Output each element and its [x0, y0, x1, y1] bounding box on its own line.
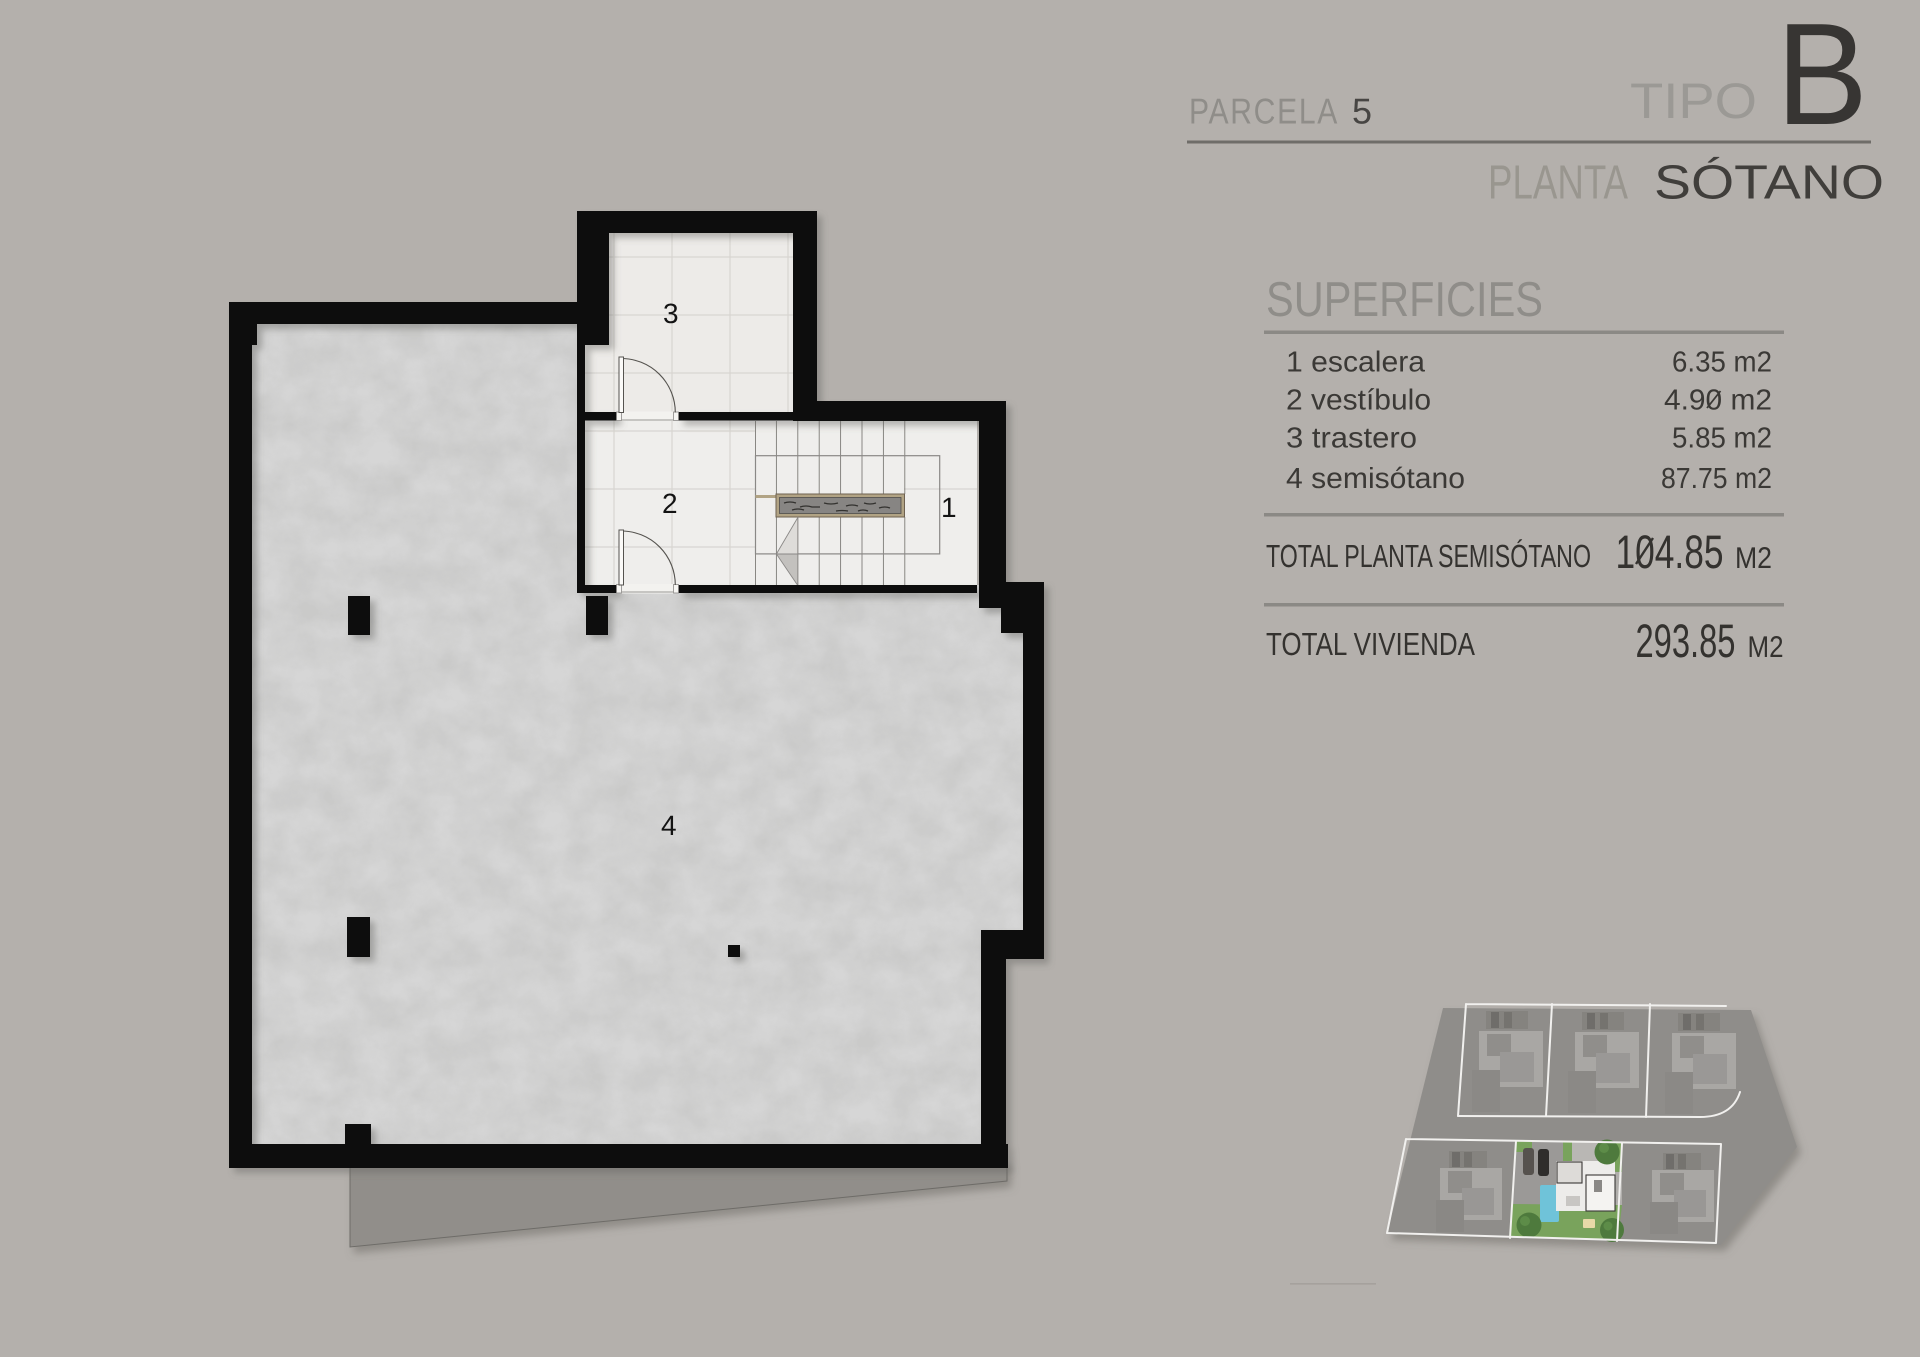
svg-text:4 semisótano: 4 semisótano [1286, 463, 1465, 495]
svg-text:4: 4 [661, 810, 677, 841]
svg-text:PLANTA: PLANTA [1488, 157, 1628, 210]
svg-text:3 trastero: 3 trastero [1286, 423, 1417, 455]
svg-text:B: B [1776, 0, 1868, 155]
svg-text:TOTAL VIVIENDA: TOTAL VIVIENDA [1266, 626, 1476, 662]
svg-text:2: 2 [662, 488, 678, 519]
svg-text:5: 5 [1352, 91, 1372, 132]
svg-text:5.85 m2: 5.85 m2 [1672, 423, 1772, 455]
svg-text:104.85: 104.85 [1616, 525, 1724, 578]
svg-text:PARCELA: PARCELA [1189, 91, 1339, 132]
svg-text:TOTAL PLANTA SEMISÓTANO: TOTAL PLANTA SEMISÓTANO [1266, 538, 1591, 574]
svg-text:3: 3 [663, 298, 679, 329]
svg-text:87.75 m2: 87.75 m2 [1661, 463, 1772, 495]
svg-text:SUPERFICIES: SUPERFICIES [1266, 273, 1543, 327]
svg-text:293.85: 293.85 [1636, 614, 1736, 667]
svg-text:1 escalera: 1 escalera [1286, 347, 1426, 379]
svg-text:1: 1 [941, 492, 957, 523]
svg-text:M2: M2 [1748, 631, 1784, 664]
svg-text:TIPO: TIPO [1630, 73, 1757, 129]
svg-text:4.90 m2: 4.90 m2 [1664, 385, 1772, 417]
svg-text:2 vestíbulo: 2 vestíbulo [1286, 385, 1431, 417]
svg-text:M2: M2 [1735, 542, 1772, 575]
svg-text:SÓTANO: SÓTANO [1654, 157, 1884, 210]
svg-text:6.35 m2: 6.35 m2 [1672, 347, 1772, 379]
